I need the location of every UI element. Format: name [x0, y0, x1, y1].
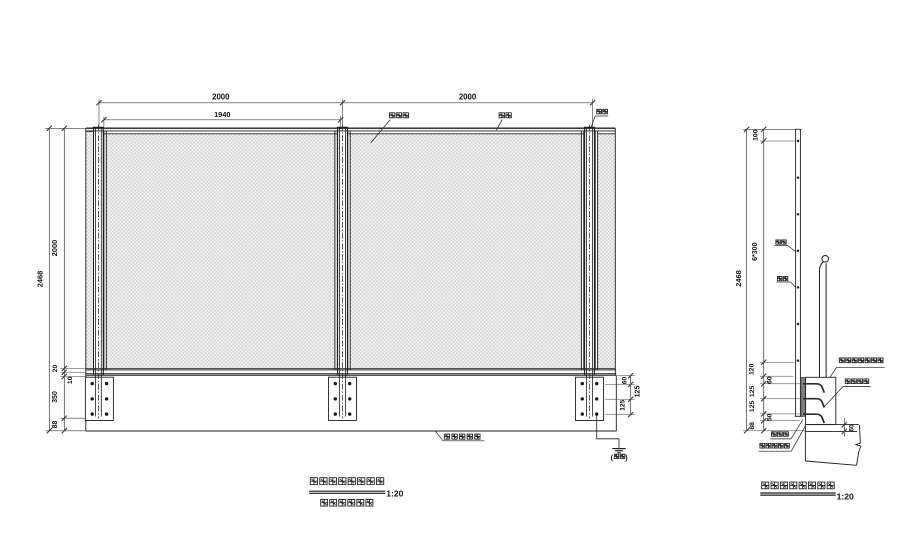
svg-text:100: 100 [752, 129, 759, 141]
svg-text:6*300: 6*300 [752, 242, 759, 260]
svg-text:60: 60 [766, 376, 773, 384]
svg-text:88: 88 [52, 421, 59, 429]
svg-text:125: 125 [749, 386, 756, 398]
svg-text:60: 60 [621, 377, 628, 385]
svg-text:125: 125 [635, 386, 642, 398]
svg-text:350: 350 [52, 391, 59, 403]
svg-text:1:20: 1:20 [837, 492, 854, 502]
svg-text:2000: 2000 [212, 93, 230, 102]
svg-text:125: 125 [749, 401, 756, 413]
svg-text:60: 60 [848, 424, 855, 432]
svg-text:2000: 2000 [459, 93, 477, 102]
svg-text:50: 50 [766, 413, 773, 421]
svg-text:1:20: 1:20 [386, 488, 403, 498]
svg-text:2468: 2468 [734, 270, 743, 286]
svg-text:2468: 2468 [36, 271, 45, 287]
svg-text:120: 120 [749, 363, 756, 375]
svg-text:2000: 2000 [50, 240, 59, 256]
svg-text:1940: 1940 [214, 110, 230, 119]
svg-text:88: 88 [749, 422, 756, 430]
svg-text:): ) [625, 455, 627, 462]
svg-text:20: 20 [52, 365, 59, 373]
svg-text:125: 125 [620, 399, 627, 410]
svg-text:10: 10 [67, 376, 74, 384]
